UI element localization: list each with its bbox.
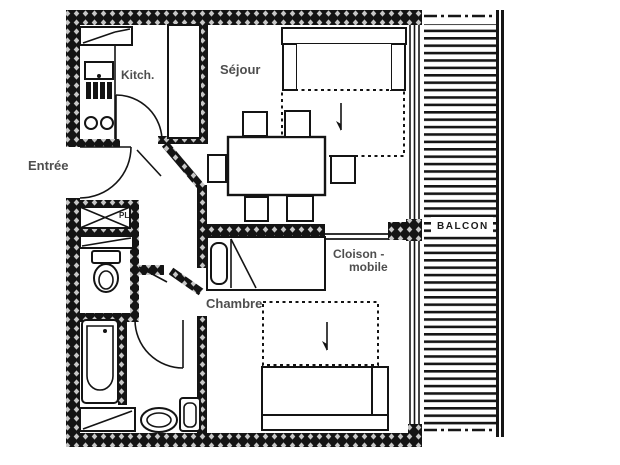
tall-cupboard: [168, 25, 200, 138]
cloison-label-line2: mobile: [349, 260, 388, 274]
small-basin: [180, 398, 200, 431]
chair-top-right: [285, 111, 310, 137]
chambre-sofa-seat: [262, 367, 372, 417]
balcon-label: BALCON: [437, 221, 489, 232]
sejour-label: Séjour: [220, 62, 260, 77]
wall-left-upper: [66, 10, 80, 147]
wall-wc-right: [130, 200, 139, 316]
balcony-rail-outer: [496, 10, 499, 437]
wall-cloison-end: [388, 222, 408, 240]
wall-sejour-chambre: [197, 224, 325, 236]
placard-label: PL: [119, 211, 129, 220]
cloison-label-line1: Cloison -: [333, 247, 384, 261]
window-wall: [406, 10, 422, 447]
wall-bottom: [66, 433, 412, 447]
sofa-back: [282, 28, 406, 44]
chair-left: [208, 155, 226, 182]
wall-placard-bottom: [66, 228, 130, 235]
window-wall-bottom-block: [408, 424, 422, 447]
bed-pillow: [211, 243, 227, 284]
entree-label: Entrée: [28, 158, 68, 173]
sejour-sofa: [282, 28, 406, 90]
grill-bar: [93, 82, 98, 99]
balcony-rail-edge: [501, 10, 504, 437]
wall-corridor-stub: [80, 139, 120, 147]
grill-bar: [107, 82, 112, 99]
sofa-seat: [297, 44, 391, 90]
chair-top-left: [243, 112, 267, 136]
window-wall-mid-block: [406, 219, 422, 241]
washbasin: [141, 408, 177, 432]
dining-table: [228, 137, 325, 195]
grill-bar: [86, 82, 91, 99]
wall-tub-side: [118, 316, 127, 405]
sink-drain: [97, 74, 101, 78]
balcony: BALCON: [424, 10, 504, 437]
closet-pl: PL: [80, 207, 130, 228]
chair-bottom-right: [287, 196, 313, 221]
floor-plan: BALCON: [0, 0, 620, 465]
bathtub-faucet: [103, 329, 107, 333]
window-wall-top-block: [408, 10, 422, 25]
chambre-sofa-back: [262, 415, 388, 430]
grill-bar: [100, 82, 105, 99]
bathtub: [82, 320, 118, 403]
wall-placard-top: [66, 200, 138, 207]
wall-left-lower: [66, 198, 80, 447]
toilet-tank: [92, 251, 120, 263]
toilet-bowl: [94, 264, 118, 292]
wall-top: [66, 10, 422, 25]
single-bed: [207, 237, 325, 290]
chair-right: [331, 156, 355, 183]
sofa-arm-right: [391, 44, 405, 90]
wall-kitchen-sejour: [200, 24, 208, 143]
chambre-sofa: [262, 367, 388, 430]
sofa-arm-left: [283, 44, 297, 90]
chambre-label: Chambre: [206, 296, 262, 311]
chair-bottom-left: [245, 197, 268, 221]
toilet: [92, 251, 120, 292]
kitchen-label: Kitch.: [121, 68, 154, 82]
chambre-sofa-arm: [372, 367, 388, 417]
burner-left: [85, 117, 97, 129]
burner-right: [101, 117, 113, 129]
